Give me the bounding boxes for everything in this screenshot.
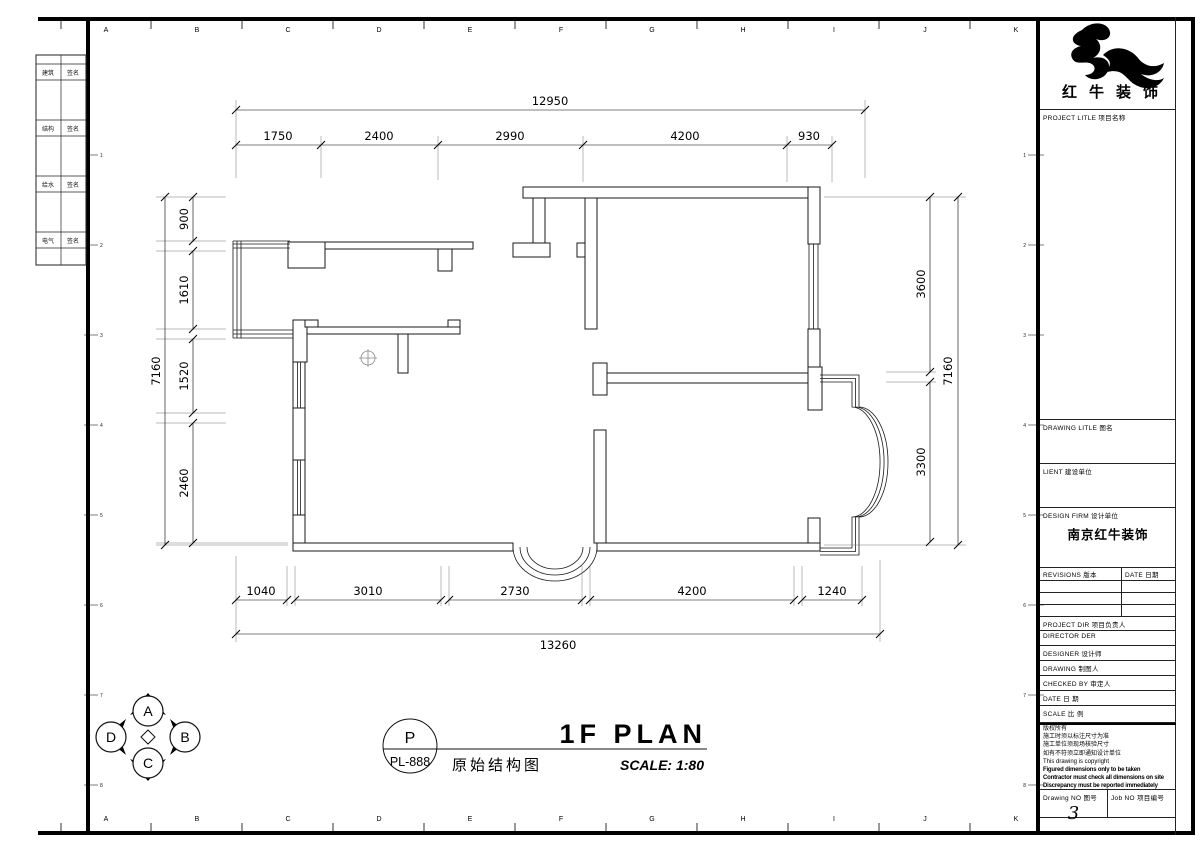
field-label: Drawing NO 图号 bbox=[1040, 790, 1107, 802]
grid-letter: K bbox=[1014, 27, 1019, 34]
titleblock-checked-by: CHECKED BY 审定人 bbox=[1040, 676, 1176, 691]
titleblock-design-firm: DESIGN FIRM 设计单位 南京红牛装饰 bbox=[1040, 508, 1176, 568]
dim-top-seg: 2400 bbox=[364, 129, 393, 143]
wall-east-upper bbox=[808, 187, 820, 244]
wall-kitchen-bedroom bbox=[585, 198, 597, 329]
grid-letter: C bbox=[285, 27, 290, 34]
fold-cell: 结构 bbox=[42, 125, 54, 133]
compass-icon: A B C D bbox=[96, 693, 200, 781]
bottom-ruler-ticks bbox=[61, 823, 970, 831]
wall-north bbox=[523, 187, 820, 198]
wall-living-north-stub bbox=[438, 249, 452, 271]
wall-bay-top-pier bbox=[808, 367, 822, 410]
wall-hall-north bbox=[607, 373, 808, 383]
zone-number: 4 bbox=[1023, 423, 1026, 429]
window-west-lower bbox=[293, 460, 305, 515]
extension-lines bbox=[156, 100, 966, 642]
note-line: 施工时须以标注尺寸为准 bbox=[1040, 733, 1176, 741]
dim-left-seg: 900 bbox=[177, 208, 191, 230]
frame-left-bar bbox=[86, 17, 90, 835]
dim-bottom-seg: 3010 bbox=[353, 584, 382, 598]
dim-top-seg: 4200 bbox=[670, 129, 699, 143]
zone-number: 6 bbox=[1023, 603, 1026, 609]
drawing-number-value: 3 bbox=[1040, 803, 1107, 824]
wall-west-lower bbox=[293, 515, 305, 543]
cad-canvas: A B C D E F G H I J K A B C D E F G H I … bbox=[0, 0, 1200, 845]
zone-number: 2 bbox=[100, 243, 103, 249]
fold-cell: 签名 bbox=[67, 237, 79, 245]
wall-living-north bbox=[325, 242, 473, 249]
fold-cell: 签名 bbox=[67, 181, 79, 189]
titleblock-designer: DESIGNER 设计师 bbox=[1040, 646, 1176, 661]
bottom-grid-letters: A B C D E F G H I J K bbox=[104, 816, 1019, 823]
grid-letter: H bbox=[740, 27, 745, 34]
wall-east-lower bbox=[808, 329, 820, 367]
wall-interior-lower bbox=[594, 430, 606, 543]
zone-number: 5 bbox=[100, 513, 103, 519]
plan-title-en: 1F PLAN bbox=[559, 719, 707, 749]
dim-top-seg: 2990 bbox=[495, 129, 524, 143]
titleblock-date: DATE 日 期 bbox=[1040, 691, 1176, 706]
dimension-ticks bbox=[161, 106, 962, 638]
titleblock-revisions-header: REVISIONS 版本 DATE 日期 bbox=[1040, 568, 1176, 581]
dim-left-seg: 1520 bbox=[177, 361, 191, 390]
design-firm-value: 南京红牛装饰 bbox=[1040, 524, 1176, 543]
grid-letter: G bbox=[649, 816, 654, 823]
field-label: DATE 日期 bbox=[1122, 568, 1176, 579]
wall-south-left bbox=[293, 543, 513, 551]
grid-letter: F bbox=[559, 27, 563, 34]
floor-plan bbox=[288, 187, 822, 551]
compass-center-diamond bbox=[141, 730, 155, 744]
fold-cell: 建筑 bbox=[42, 69, 54, 77]
zone-number: 7 bbox=[1023, 693, 1026, 699]
titleblock-revision-row bbox=[1040, 593, 1176, 605]
compass-letter: A bbox=[143, 703, 153, 719]
wall-living-north-pier bbox=[288, 242, 325, 268]
top-grid-letters: A B C D E F G H I J K bbox=[104, 27, 1019, 34]
dim-right-seg: 3600 bbox=[914, 269, 928, 298]
dim-top-seg: 1750 bbox=[263, 129, 292, 143]
grid-letter: A bbox=[104, 27, 109, 34]
note-line: This drawing is copyright bbox=[1040, 758, 1176, 766]
zone-number: 6 bbox=[100, 603, 103, 609]
bay-window-bottom-inner bbox=[527, 547, 583, 569]
note-line: 版权所有 bbox=[1040, 725, 1176, 733]
grid-letter: D bbox=[376, 816, 381, 823]
titleblock-numbers: Drawing NO 图号 3 Job NO 项目编号 bbox=[1040, 790, 1176, 818]
grid-letter: C bbox=[285, 816, 290, 823]
wall-bay-bottom-pier bbox=[808, 518, 820, 543]
dim-bottom-seg: 1040 bbox=[246, 584, 275, 598]
zone-number: 8 bbox=[1023, 783, 1026, 789]
grid-letter: B bbox=[195, 27, 200, 34]
grid-letter: F bbox=[559, 816, 563, 823]
dim-top-seg: 930 bbox=[798, 129, 820, 143]
wall-living-south-end bbox=[448, 320, 460, 327]
title-bar: A B C D P PL-888 1F PLAN 原始结构图 SCALE: 1:… bbox=[96, 693, 707, 781]
compass-letter: C bbox=[143, 755, 153, 771]
field-label: DESIGN FIRM 设计单位 bbox=[1040, 508, 1176, 520]
dim-right-seg: 3300 bbox=[914, 447, 928, 476]
field-label: PROJECT LITLE 项目名称 bbox=[1040, 110, 1176, 122]
bay-window-right-outer bbox=[820, 375, 888, 555]
dim-left-seg: 2460 bbox=[177, 468, 191, 497]
field-label: DRAWING LITLE 图名 bbox=[1040, 420, 1176, 432]
titleblock-logo-row: 红牛装饰 bbox=[1040, 17, 1176, 110]
field-label: REVISIONS 版本 bbox=[1040, 568, 1121, 579]
dim-left-seg: 1610 bbox=[177, 275, 191, 304]
zone-number: 1 bbox=[1023, 153, 1026, 159]
titleblock-drawing-by: DRAWING 制图人 bbox=[1040, 661, 1176, 676]
zone-number: 3 bbox=[1023, 333, 1026, 339]
note-line: Figured dimensions only to be taken bbox=[1040, 766, 1176, 774]
grid-letter: B bbox=[195, 816, 200, 823]
column-marker-icon bbox=[359, 349, 377, 367]
windows bbox=[233, 241, 888, 581]
plan-title-cn: 原始结构图 bbox=[452, 757, 542, 774]
zone-number: 1 bbox=[100, 153, 103, 159]
field-label: SCALE 比 例 bbox=[1040, 706, 1176, 718]
compass-letter: D bbox=[106, 729, 116, 745]
grid-letter: E bbox=[468, 27, 473, 34]
wall-notch bbox=[577, 243, 585, 257]
fold-strip: 建筑 签名 结构 签名 给水 签名 电气 签名 bbox=[36, 55, 86, 265]
note-line: Contractor must check all dimensions on … bbox=[1040, 774, 1176, 782]
wall-interior-mid-pier bbox=[398, 334, 408, 373]
wall-living-south bbox=[307, 327, 460, 334]
titleblock-project-title: PROJECT LITLE 项目名称 bbox=[1040, 110, 1176, 420]
grid-letter: H bbox=[740, 816, 745, 823]
sheet-bubble-number: PL-888 bbox=[390, 755, 430, 769]
wall-west-mid bbox=[293, 408, 305, 460]
zone-number: 7 bbox=[100, 693, 103, 699]
grid-letter: J bbox=[923, 27, 927, 34]
field-label: DESIGNER 设计师 bbox=[1040, 646, 1176, 658]
titleblock-director: DIRECTOR DER bbox=[1040, 631, 1176, 646]
dim-bottom-seg: 4200 bbox=[677, 584, 706, 598]
note-line: 施工单位须现场核验尺寸 bbox=[1040, 741, 1176, 749]
dim-bottom-seg: 1240 bbox=[817, 584, 846, 598]
field-label: DIRECTOR DER bbox=[1040, 631, 1176, 640]
bay-window-bottom-outer bbox=[513, 547, 597, 581]
dim-bottom-seg: 2730 bbox=[500, 584, 529, 598]
plan-scale-text: SCALE: 1:80 bbox=[620, 757, 704, 773]
zone-number: 8 bbox=[100, 783, 103, 789]
sheet-bubble-top: P bbox=[405, 730, 416, 747]
frame-right-bar bbox=[1191, 17, 1195, 835]
titleblock-notes: 版权所有 施工时须以标注尺寸为准 施工单位须现场核验尺寸 如有不符须立即通知设计… bbox=[1040, 723, 1176, 790]
titleblock-project-dir: PROJECT DIR 项目负责人 bbox=[1040, 617, 1176, 631]
compass-letter: B bbox=[180, 729, 189, 745]
titleblock-drawing-title: DRAWING LITLE 图名 bbox=[1040, 420, 1176, 464]
window-west-upper bbox=[293, 362, 305, 408]
wall-living-south-tab bbox=[305, 320, 318, 327]
field-label: DRAWING 制图人 bbox=[1040, 661, 1176, 673]
dim-left-total: 7160 bbox=[149, 356, 163, 385]
titleblock-revision-row bbox=[1040, 581, 1176, 593]
wall-flue-foot bbox=[513, 243, 550, 257]
titleblock-revision-row bbox=[1040, 605, 1176, 617]
frame-bottom-bar bbox=[38, 831, 1193, 835]
field-label: PROJECT DIR 项目负责人 bbox=[1040, 617, 1176, 629]
field-label: DATE 日 期 bbox=[1040, 691, 1176, 703]
zone-number: 4 bbox=[100, 423, 103, 429]
zone-number: 2 bbox=[1023, 243, 1026, 249]
field-label: LIENT 建设单位 bbox=[1040, 464, 1176, 476]
zone-number: 5 bbox=[1023, 513, 1026, 519]
left-zone-numbers: 1 2 3 4 5 6 7 8 bbox=[100, 153, 103, 789]
dim-right-total: 7160 bbox=[941, 356, 955, 385]
grid-letter: E bbox=[468, 816, 473, 823]
title-block: 红牛装饰 PROJECT LITLE 项目名称 DRAWING LITLE 图名… bbox=[1040, 17, 1176, 835]
window-bedroom-east bbox=[809, 244, 818, 329]
bay-window-right-inner bbox=[820, 382, 880, 548]
dimensions: 12950 1750 2400 2990 4200 930 7160 900 1… bbox=[149, 94, 966, 652]
zone-number: 3 bbox=[100, 333, 103, 339]
note-line: 如有不符须立即通知设计单位 bbox=[1040, 750, 1176, 758]
dim-bottom-total: 13260 bbox=[540, 638, 577, 652]
wall-hall-cap bbox=[593, 363, 607, 395]
grid-letter: A bbox=[104, 816, 109, 823]
grid-letter: G bbox=[649, 27, 654, 34]
drawing-sheet: A B C D E F G H I J K A B C D E F G H I … bbox=[0, 0, 1200, 845]
grid-letter: K bbox=[1014, 816, 1019, 823]
dim-top-total: 12950 bbox=[532, 94, 569, 108]
grid-letter: I bbox=[833, 816, 835, 823]
fold-cell: 签名 bbox=[67, 69, 79, 77]
column-marker-cross bbox=[359, 349, 377, 367]
titleblock-client: LIENT 建设单位 bbox=[1040, 464, 1176, 508]
grid-letter: I bbox=[833, 27, 835, 34]
sheet-frame: A B C D E F G H I J K A B C D E F G H I … bbox=[36, 17, 1195, 835]
wall-flue-stem bbox=[533, 198, 545, 243]
field-label: CHECKED BY 审定人 bbox=[1040, 676, 1176, 688]
titleblock-scale: SCALE 比 例 bbox=[1040, 706, 1176, 723]
fold-cell: 电气 bbox=[42, 237, 54, 245]
bay-window-bottom-mid bbox=[520, 547, 590, 575]
fold-cell: 给水 bbox=[42, 181, 54, 189]
grid-letter: D bbox=[376, 27, 381, 34]
frame-top-bar bbox=[38, 17, 1193, 21]
wall-south-right bbox=[597, 543, 820, 551]
right-zone-numbers: 1 2 3 4 5 6 7 8 bbox=[1023, 153, 1026, 789]
dimension-texts: 12950 1750 2400 2990 4200 930 7160 900 1… bbox=[149, 94, 955, 652]
window-balcony bbox=[233, 241, 293, 338]
field-label: Job NO 项目编号 bbox=[1108, 790, 1176, 802]
grid-letter: J bbox=[923, 816, 927, 823]
brand-name: 红牛装饰 bbox=[1040, 81, 1182, 102]
fold-cell: 签名 bbox=[67, 125, 79, 133]
